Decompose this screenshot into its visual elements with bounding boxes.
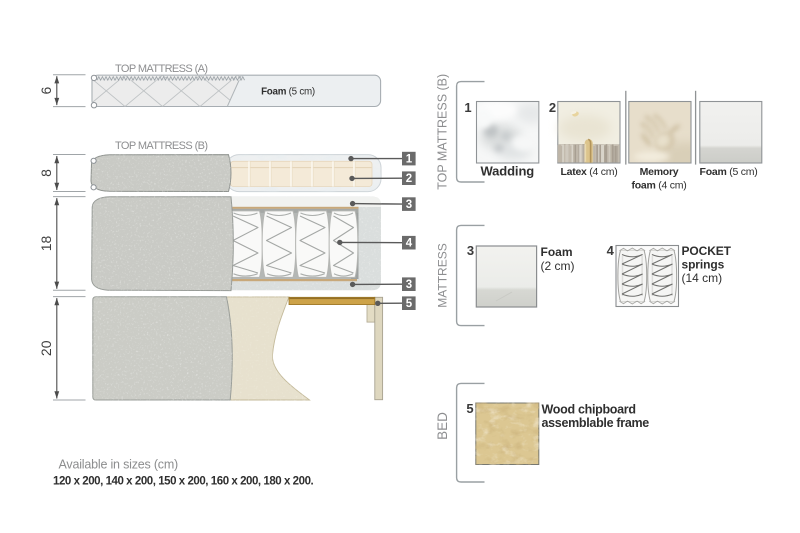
svg-text:6: 6 — [38, 86, 54, 94]
svg-text:(14 cm): (14 cm) — [682, 271, 723, 285]
svg-text:Foam (5 cm): Foam (5 cm) — [261, 87, 315, 98]
svg-text:8: 8 — [38, 169, 54, 177]
svg-text:(2 cm): (2 cm) — [541, 259, 575, 273]
svg-text:Memory: Memory — [640, 166, 679, 178]
svg-text:assemblable frame: assemblable frame — [542, 416, 650, 430]
svg-text:POCKET: POCKET — [682, 244, 732, 258]
svg-text:5: 5 — [406, 298, 413, 310]
svg-text:foam (4 cm): foam (4 cm) — [631, 180, 686, 192]
svg-text:Latex (4 cm): Latex (4 cm) — [560, 166, 617, 178]
svg-text:18: 18 — [38, 236, 54, 252]
svg-text:120 x 200, 140 x 200, 150 x 20: 120 x 200, 140 x 200, 150 x 200, 160 x 2… — [53, 476, 314, 488]
svg-text:Wood chipboard: Wood chipboard — [542, 402, 636, 416]
svg-text:MATTRESS: MATTRESS — [436, 243, 450, 307]
svg-text:BED: BED — [435, 412, 450, 440]
svg-text:3: 3 — [467, 243, 474, 258]
svg-text:Wadding: Wadding — [480, 163, 534, 178]
svg-text:2: 2 — [406, 173, 412, 185]
svg-text:Foam: Foam — [541, 245, 573, 259]
svg-text:4: 4 — [607, 243, 615, 258]
svg-text:TOP MATTRESS (A): TOP MATTRESS (A) — [115, 63, 207, 75]
svg-text:Available in sizes (cm): Available in sizes (cm) — [59, 457, 179, 471]
svg-text:1: 1 — [464, 100, 471, 115]
svg-text:1: 1 — [406, 153, 413, 165]
svg-text:springs: springs — [682, 257, 725, 271]
svg-text:3: 3 — [406, 199, 412, 211]
svg-text:20: 20 — [38, 340, 54, 356]
svg-text:4: 4 — [406, 238, 413, 250]
svg-text:5: 5 — [466, 401, 473, 416]
svg-text:TOP MATTRESS (B): TOP MATTRESS (B) — [436, 74, 450, 190]
svg-text:TOP MATTRESS (B): TOP MATTRESS (B) — [115, 140, 207, 152]
svg-text:Foam (5 cm): Foam (5 cm) — [700, 166, 758, 178]
svg-text:2: 2 — [549, 100, 556, 115]
svg-text:3: 3 — [406, 279, 412, 291]
